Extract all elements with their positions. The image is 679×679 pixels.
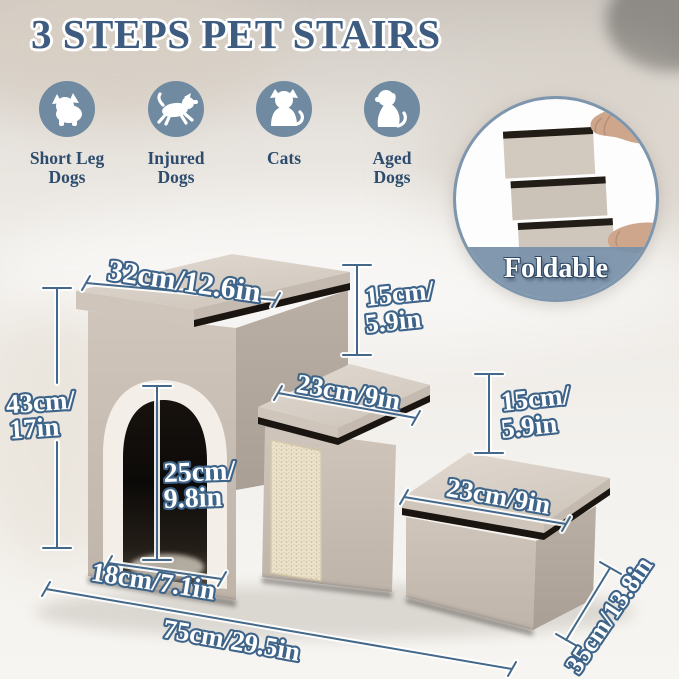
audience-item-aged-dogs: Aged Dogs [336,81,448,187]
audience-label: Aged Dogs [336,149,448,187]
audience-label: Short Leg Dogs [11,149,123,187]
audience-label: Injured Dogs [120,149,232,187]
dim-step1-rise-label-line2: 5.9in [363,303,422,339]
audience-item-injured-dogs: Injured Dogs [120,81,232,187]
aged-dog-icon [364,81,420,137]
audience-label: Cats [228,149,340,168]
dim-door-height-label-line2: 9.8in [163,482,223,515]
foldable-badge: Foldable [456,247,656,299]
foldable-badge-label: Foldable [456,253,656,285]
audience-item-cats: Cats [228,81,340,168]
audience-item-short-leg-dogs: Short Leg Dogs [11,81,123,187]
dim-house-height-label-line2: 17in [9,411,61,444]
scratch-pad [271,440,321,581]
short-leg-dog-icon [39,81,95,137]
product-infographic: 32cm/12.6in 15cm/ 5.9in 23cm/9in 15cm/ 5… [0,0,679,679]
injured-dog-icon [148,81,204,137]
page-title: 3 STEPS PET STAIRS [31,10,441,58]
foldable-inset: Foldable [453,96,659,302]
dim-step2-rise-label-line2: 5.9in [499,408,558,444]
cat-icon [256,81,312,137]
